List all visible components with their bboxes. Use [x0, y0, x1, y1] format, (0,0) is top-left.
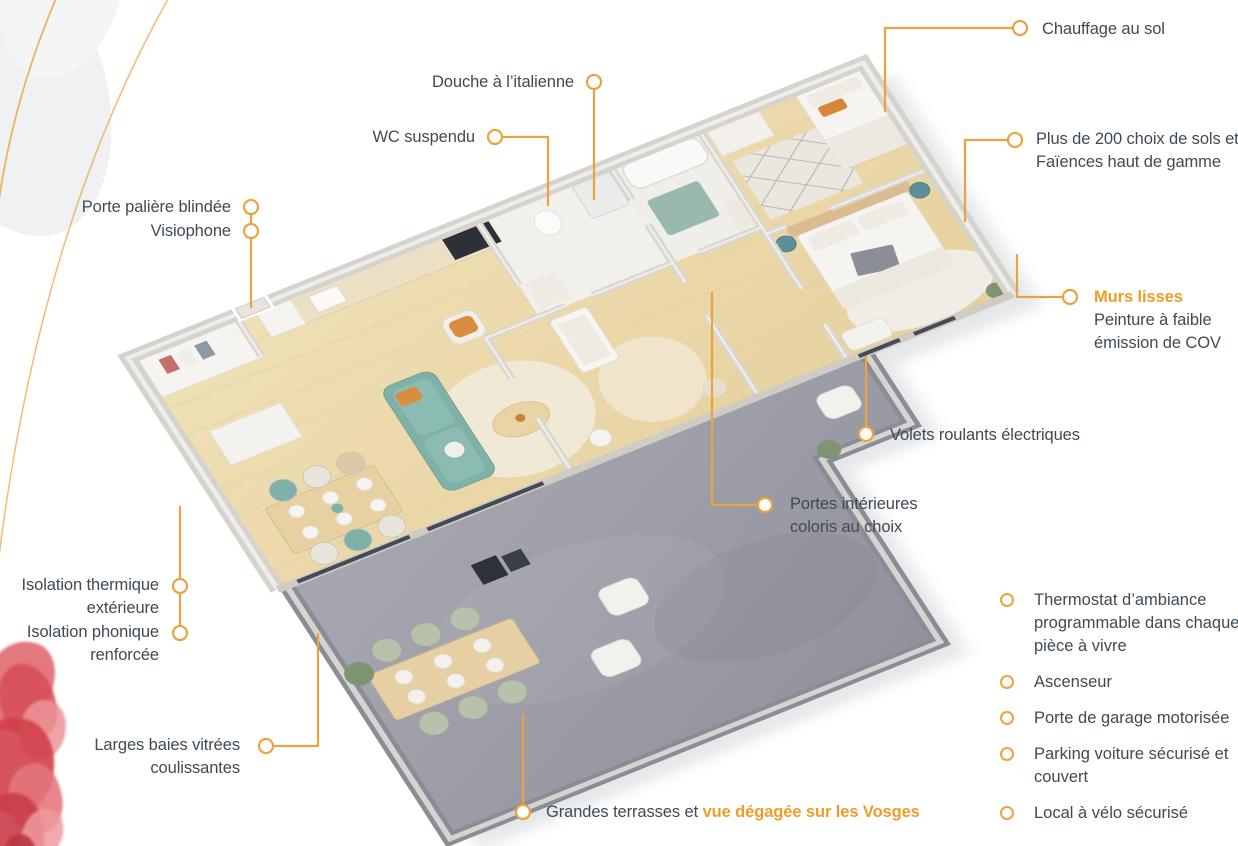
marker-sols: [1008, 133, 1022, 147]
connector-chauffage: [885, 28, 1012, 112]
feature-label: Local à vélo sécurisé: [1034, 802, 1238, 825]
floorplan-page: Chauffage au sol Douche à l’italienne WC…: [0, 0, 1238, 846]
label-baies-line1: Larges baies vitrées: [56, 734, 240, 757]
marker-isolation-phonique: [173, 626, 187, 640]
label-terrasses: Grandes terrasses et vue dégagée sur les…: [546, 801, 920, 824]
marker-visiophone: [244, 224, 258, 238]
marker-terrasses: [516, 805, 530, 819]
label-portes-line1: Portes intérieures: [790, 493, 918, 516]
label-sols-line1: Plus de 200 choix de sols et: [1036, 128, 1238, 151]
label-volets: Volets roulants électriques: [890, 424, 1080, 447]
marker-porte-paliere: [244, 200, 258, 214]
label-iso-thermique-line2: extérieure: [0, 597, 159, 620]
list-item: Ascenseur: [1000, 671, 1238, 694]
label-baies: Larges baies vitrées coulissantes: [56, 734, 240, 780]
label-isolation-phonique: Isolation phonique renforcée: [0, 621, 159, 667]
label-murs: Murs lisses Peinture à faible émission d…: [1094, 286, 1221, 355]
list-item: Local à vélo sécurisé: [1000, 802, 1238, 825]
label-portes: Portes intérieures coloris au choix: [790, 493, 918, 539]
label-terrasses-highlight: vue dégagée sur les Vosges: [703, 803, 920, 821]
bullet-ring-icon: [1000, 711, 1014, 725]
label-murs-title: Murs lisses: [1094, 286, 1221, 309]
label-visiophone: Visiophone: [20, 220, 231, 243]
label-sols-line2: Faïences haut de gamme: [1036, 151, 1238, 174]
label-iso-phonique-line2: renforcée: [0, 644, 159, 667]
label-baies-line2: coulissantes: [56, 757, 240, 780]
features-list: Thermostat d’ambiance programmable dans …: [1000, 589, 1238, 838]
label-douche: Douche à l’italienne: [300, 71, 574, 94]
connector-murs: [1017, 254, 1062, 297]
feature-label: Porte de garage motorisée: [1034, 707, 1238, 730]
label-murs-line1: Peinture à faible: [1094, 309, 1221, 332]
label-murs-line2: émission de COV: [1094, 332, 1221, 355]
marker-portes: [758, 498, 772, 512]
marker-isolation-thermique: [173, 579, 187, 593]
marker-douche: [587, 75, 601, 89]
label-chauffage: Chauffage au sol: [1042, 18, 1165, 41]
bullet-ring-icon: [1000, 806, 1014, 820]
list-item: Parking voiture sécurisé et couvert: [1000, 743, 1238, 789]
connector-portes: [712, 292, 757, 505]
feature-label: Thermostat d’ambiance programmable dans …: [1034, 589, 1238, 658]
marker-baies: [259, 739, 273, 753]
feature-label: Ascenseur: [1034, 671, 1238, 694]
label-porte-paliere: Porte palière blindée: [20, 196, 231, 219]
feature-label: Parking voiture sécurisé et couvert: [1034, 743, 1238, 789]
marker-murs: [1063, 290, 1077, 304]
list-item: Porte de garage motorisée: [1000, 707, 1238, 730]
bullet-ring-icon: [1000, 675, 1014, 689]
marker-volets: [859, 427, 873, 441]
label-terrasses-prefix: Grandes terrasses et: [546, 803, 703, 821]
marker-chauffage: [1013, 21, 1027, 35]
connector-baies: [274, 633, 318, 746]
bullet-ring-icon: [1000, 747, 1014, 761]
list-item: Thermostat d’ambiance programmable dans …: [1000, 589, 1238, 658]
label-iso-phonique-line1: Isolation phonique: [0, 621, 159, 644]
marker-wc: [488, 130, 502, 144]
connector-wc: [503, 137, 548, 206]
label-portes-line2: coloris au choix: [790, 516, 918, 539]
label-isolation-thermique: Isolation thermique extérieure: [0, 574, 159, 620]
label-wc: WC suspendu: [300, 126, 475, 149]
bullet-ring-icon: [1000, 593, 1014, 607]
label-sols: Plus de 200 choix de sols et Faïences ha…: [1036, 128, 1238, 174]
connector-sols: [965, 140, 1007, 222]
label-iso-thermique-line1: Isolation thermique: [0, 574, 159, 597]
